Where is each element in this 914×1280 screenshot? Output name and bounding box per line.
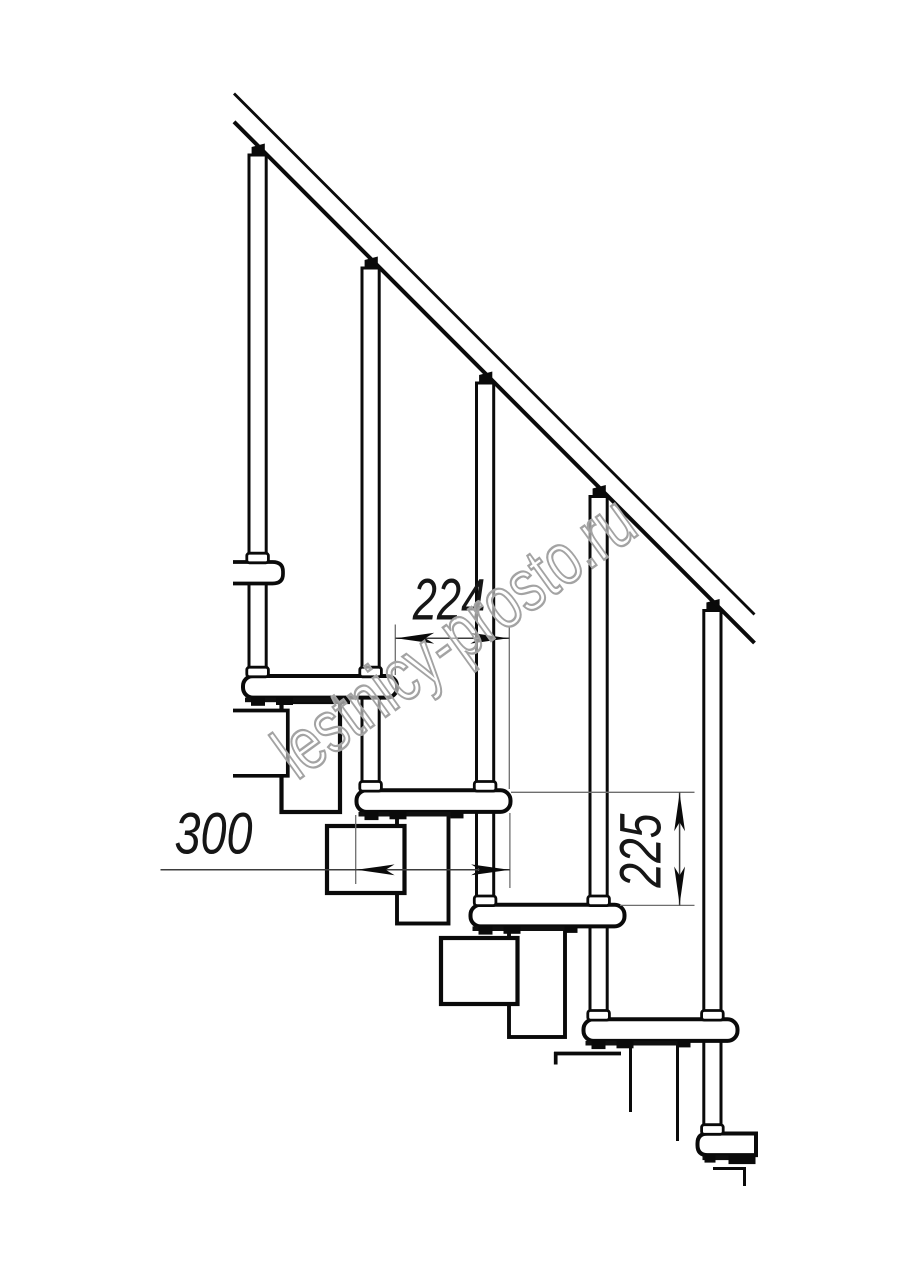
svg-text:225: 225 — [608, 813, 673, 888]
svg-text:300: 300 — [175, 802, 253, 867]
